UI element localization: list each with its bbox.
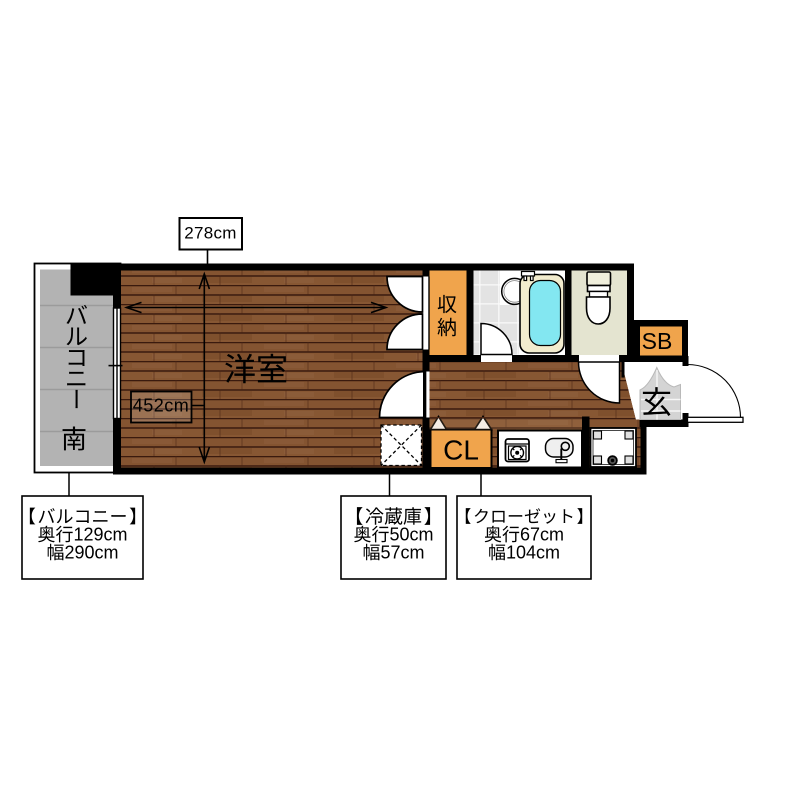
- svg-text:104cm: 104cm: [506, 542, 560, 562]
- svg-text:278cm: 278cm: [184, 224, 237, 243]
- svg-text:CL: CL: [443, 435, 479, 466]
- svg-text:452cm: 452cm: [133, 396, 190, 416]
- svg-text:50cm: 50cm: [389, 524, 433, 544]
- svg-text:SB: SB: [642, 328, 673, 354]
- svg-text:129cm: 129cm: [73, 524, 127, 544]
- svg-text:290cm: 290cm: [64, 542, 118, 562]
- svg-text:57cm: 57cm: [380, 542, 424, 562]
- svg-text:67cm: 67cm: [520, 524, 564, 544]
